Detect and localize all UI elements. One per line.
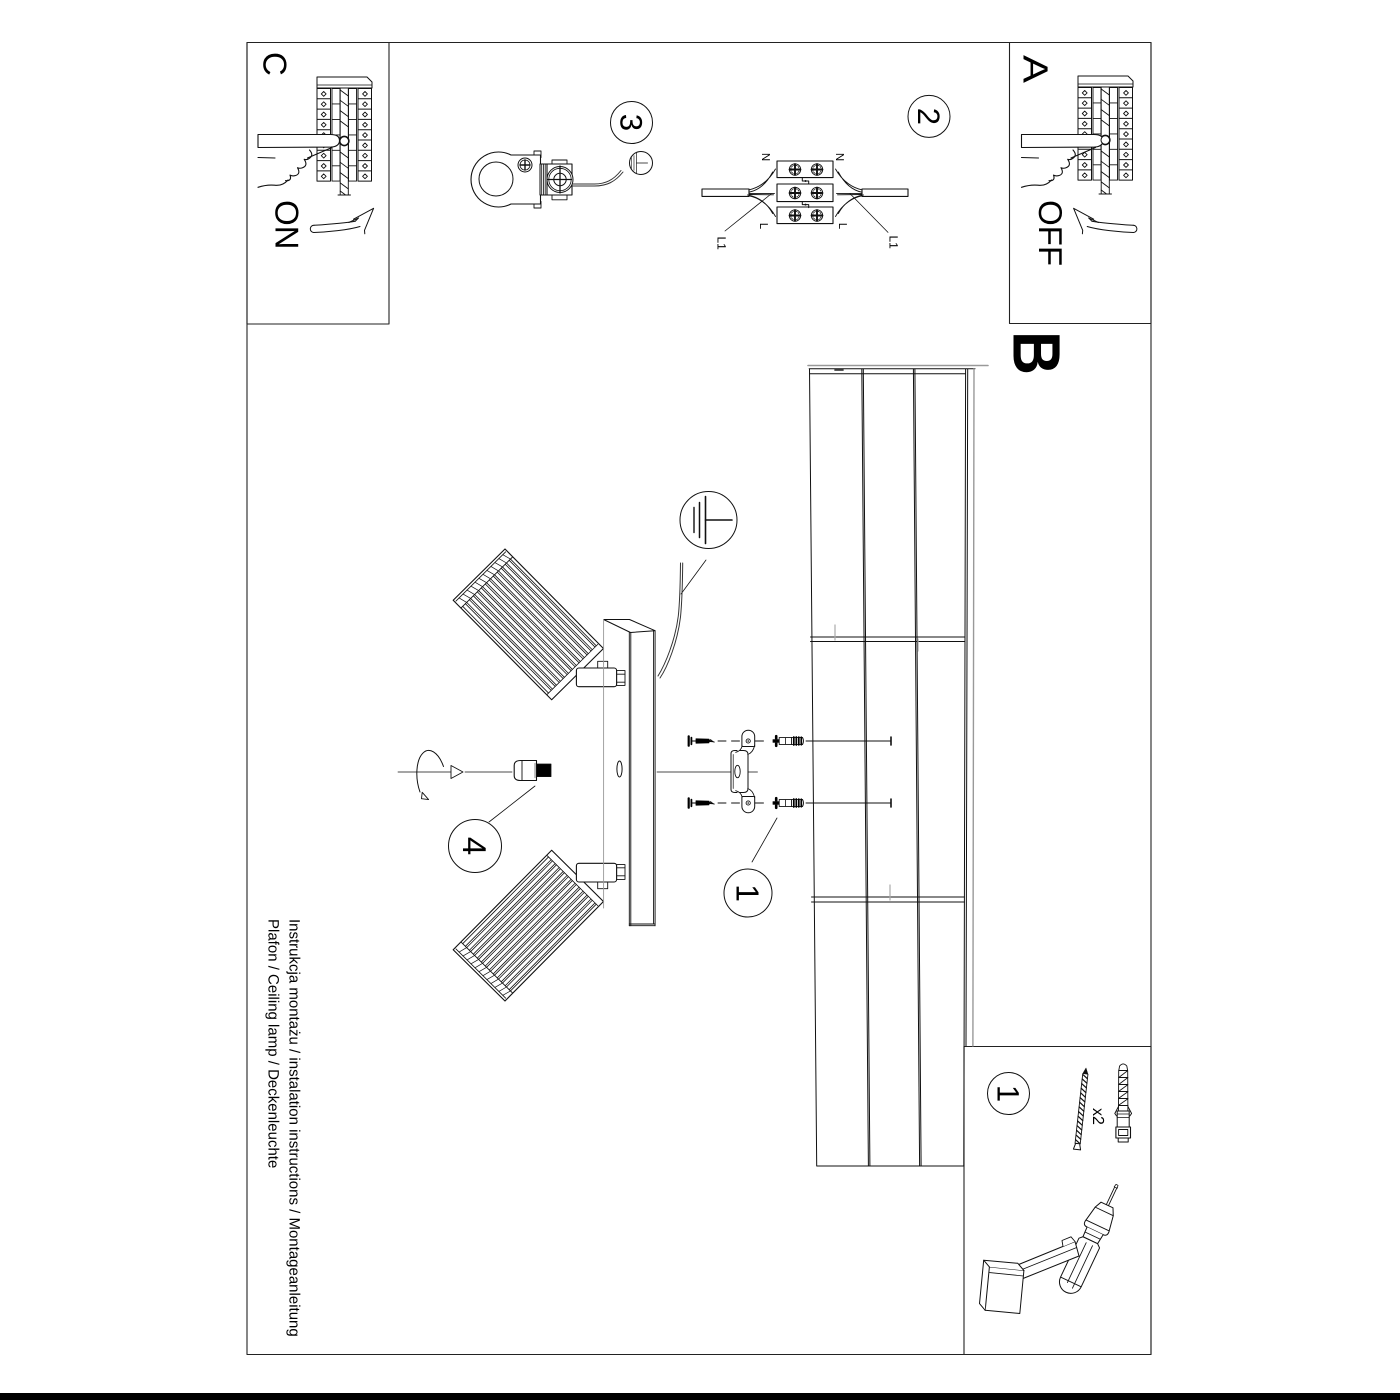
svg-text:4: 4 (456, 837, 493, 855)
svg-text:N: N (759, 153, 771, 161)
svg-text:L: L (836, 223, 848, 230)
svg-text:OFF: OFF (1032, 200, 1069, 266)
svg-text:B: B (999, 331, 1074, 375)
svg-text:ON: ON (269, 200, 306, 250)
svg-text:N: N (833, 153, 845, 161)
svg-text:1: 1 (730, 884, 766, 902)
svg-text:L1: L1 (887, 236, 901, 250)
svg-text:2: 2 (911, 108, 946, 125)
svg-text:3: 3 (614, 114, 649, 131)
svg-text:L1: L1 (715, 237, 729, 251)
svg-text:x2: x2 (1089, 1108, 1106, 1125)
svg-text:C: C (257, 52, 294, 76)
svg-text:A: A (1016, 55, 1055, 84)
svg-text:L: L (757, 223, 769, 230)
svg-text:1: 1 (991, 1085, 1026, 1102)
svg-text:Instrukcja montażu / instalati: Instrukcja montażu / instalation instruc… (286, 919, 303, 1337)
svg-text:Plafon / Ceiling lamp / Decken: Plafon / Ceiling lamp / Deckenleuchte (265, 919, 282, 1168)
